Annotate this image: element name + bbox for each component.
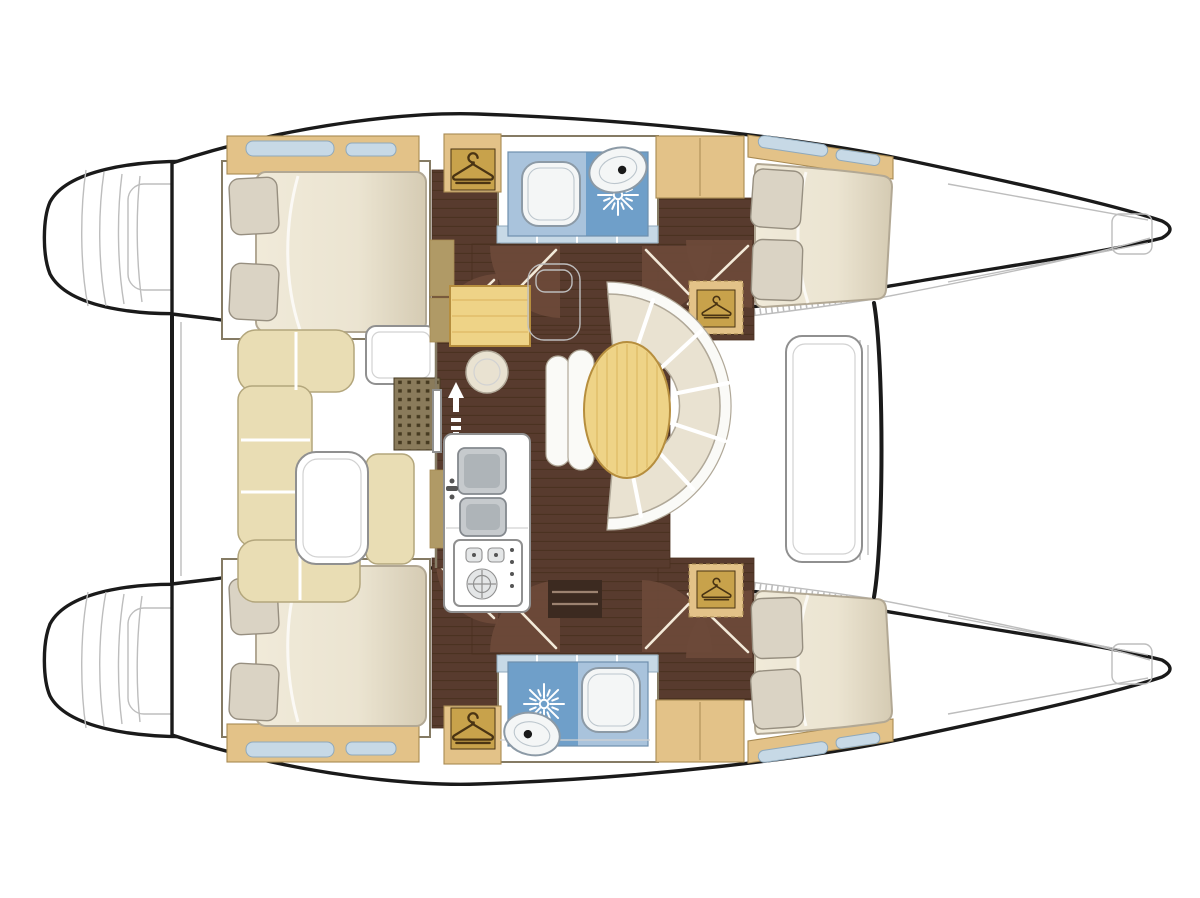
pillow — [751, 239, 803, 301]
floorplan-svg — [0, 0, 1200, 898]
forward-beam — [874, 303, 882, 597]
port-head — [508, 141, 652, 236]
helm-seat-module — [366, 326, 436, 384]
cockpit — [238, 326, 440, 602]
cockpit-table — [296, 452, 368, 564]
starboard-head — [500, 662, 650, 760]
galley — [444, 434, 530, 612]
pillow — [229, 177, 280, 235]
pillow — [229, 263, 280, 321]
stool — [466, 351, 508, 393]
aft-cabin — [222, 136, 430, 339]
hull-window — [246, 141, 334, 156]
pillow — [750, 168, 804, 229]
double-berth — [256, 172, 426, 332]
salon-table — [584, 342, 670, 478]
forward-door-panel — [786, 336, 862, 562]
stove-icon — [454, 540, 522, 606]
sliding-door — [433, 390, 441, 452]
hull-entry-steps — [548, 580, 602, 618]
toilet-icon — [582, 668, 640, 732]
catamaran-floorplan — [0, 0, 1200, 898]
toilet-icon — [522, 162, 580, 226]
cockpit-bench — [366, 454, 414, 564]
hull-window — [346, 143, 396, 156]
